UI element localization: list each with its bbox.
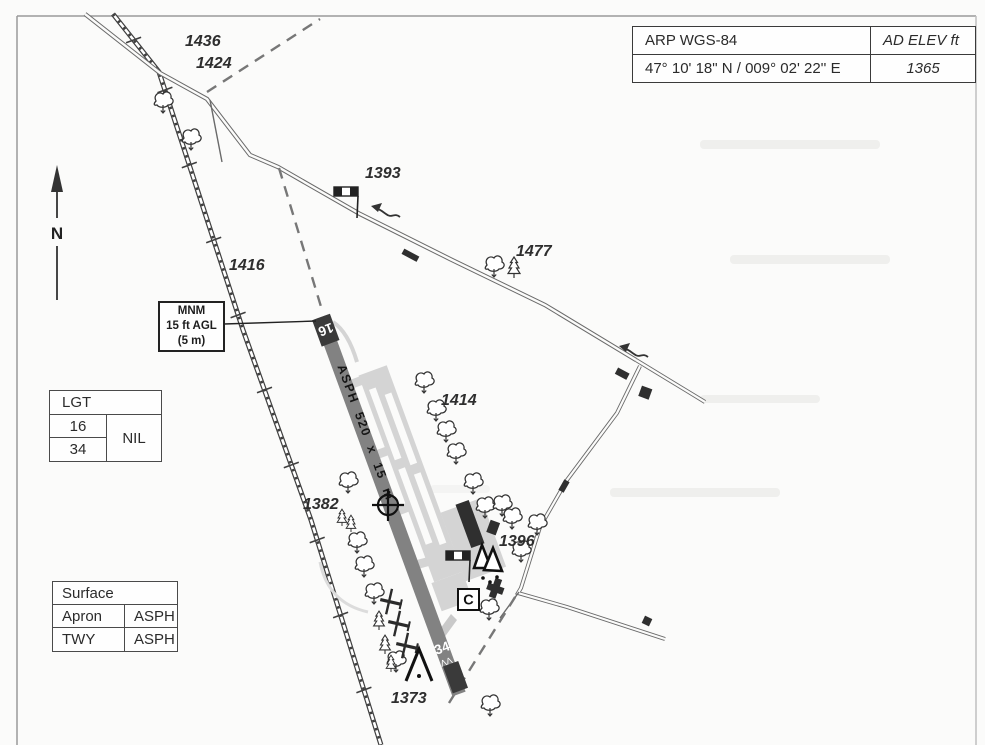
fir-tree-icon xyxy=(508,257,520,278)
building xyxy=(642,616,653,627)
mnm-line3: (5 m) xyxy=(160,334,223,349)
spot-elevation-label: 1382 xyxy=(303,496,339,513)
tree-icon xyxy=(348,532,367,553)
ad-elev-header: AD ELEV ft xyxy=(870,27,975,55)
tree-icon xyxy=(415,372,434,393)
building xyxy=(615,368,630,380)
surface-apron-value: ASPH xyxy=(124,605,177,628)
mnm-limit-box: MNM 15 ft AGL (5 m) xyxy=(158,301,225,352)
tree-icon xyxy=(437,421,456,442)
mnm-line2: 15 ft AGL xyxy=(160,319,223,334)
surface-header: Surface xyxy=(53,582,177,605)
spot-elevation-label: 1416 xyxy=(229,257,265,274)
lgt-rwy-16: 16 xyxy=(50,415,106,438)
fir-tree-icon xyxy=(346,515,356,532)
lgt-value: NIL xyxy=(106,415,161,461)
surface-apron-name: Apron xyxy=(53,605,124,628)
north-label: N xyxy=(51,224,63,243)
lgt-header: LGT xyxy=(50,391,161,415)
lgt-rwy-34: 34 xyxy=(50,438,106,461)
spot-elevation-label: 1436 xyxy=(185,33,221,50)
surface-twy-name: TWY xyxy=(53,628,124,651)
tree-icon xyxy=(481,695,500,716)
north-arrow: N xyxy=(51,165,63,300)
building xyxy=(638,386,652,400)
fir-tree-icon xyxy=(374,611,385,630)
fir-tree-icon xyxy=(380,635,391,654)
spot-elevation-label: 1414 xyxy=(441,392,477,409)
lighting-table: LGT 16 NIL 34 xyxy=(49,390,162,462)
fir-tree-icon xyxy=(337,509,347,526)
tree-icon xyxy=(447,443,466,464)
surface-twy-value: ASPH xyxy=(124,628,177,651)
spot-elevation-label: 1477 xyxy=(516,243,553,260)
spot-elevation-label: 1396 xyxy=(499,533,535,550)
spot-elevation-label: 1393 xyxy=(365,165,401,182)
page-bleed-through xyxy=(430,140,890,497)
c-office-label: C xyxy=(463,593,474,609)
aerodrome-chart: 16 34 ΛΛ ASPH 520 x 15 m xyxy=(0,0,985,745)
arp-elevation-table: ARP WGS-84 AD ELEV ft 47° 10' 18" N / 00… xyxy=(632,26,976,83)
tree-icon xyxy=(339,472,358,493)
winch-symbol-icon xyxy=(406,649,432,681)
building xyxy=(484,576,507,601)
tree-icon xyxy=(503,508,522,529)
building xyxy=(402,249,420,262)
c-office-box: C xyxy=(458,589,479,610)
ad-elevation-value: 1365 xyxy=(870,55,975,82)
tree-icon xyxy=(480,599,499,620)
spot-elevation-label: 1373 xyxy=(391,690,427,707)
flow-arrow-icon xyxy=(371,203,400,217)
mnm-line1: MNM xyxy=(160,304,223,319)
tree-icon xyxy=(355,556,374,577)
arp-coordinates: 47° 10' 18" N / 009° 02' 22'' E xyxy=(633,55,870,82)
surface-table: Surface Apron ASPH TWY ASPH xyxy=(52,581,178,652)
spot-elevation-label: 1424 xyxy=(196,55,232,72)
arp-header: ARP WGS-84 xyxy=(633,27,870,55)
tree-icon xyxy=(485,256,504,277)
